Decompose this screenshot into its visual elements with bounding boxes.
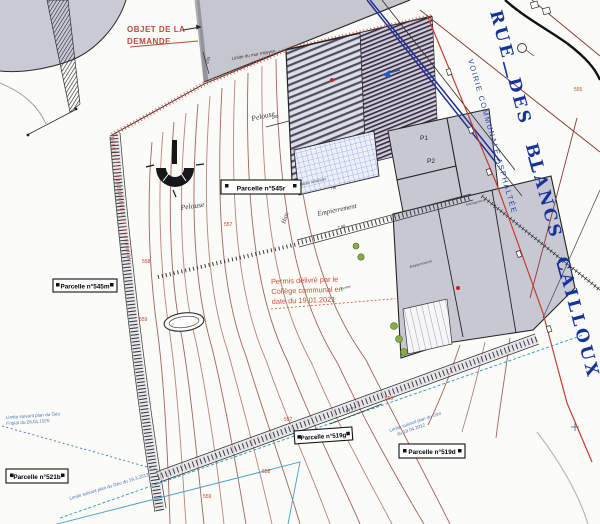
parcel-label-521b: Parcelle n°521b <box>6 469 68 483</box>
building-mark-p1: P1 <box>420 135 428 142</box>
contour-label-556: 556 <box>385 396 394 402</box>
parcel-label-519d: Parcelle n°519d <box>399 444 465 458</box>
contour-label-559a: 559 <box>139 317 148 323</box>
contour-label-558a: 558 <box>142 259 151 265</box>
parcel-545m-label: Parcelle n°545m <box>60 283 109 291</box>
contour-label-558b: 558 <box>262 469 271 475</box>
contour-label-555: 555 <box>574 87 583 93</box>
building-mark-p2: P2 <box>427 158 435 165</box>
request-object-line2: DEMANDE <box>127 37 171 46</box>
parcel-519d-label: Parcelle n°519d <box>408 448 455 456</box>
parcel-545r-label: Parcelle n°545r <box>237 185 286 193</box>
site-plan-page: RUE DES BLANCS CAILLOUX VOIRIE COMMUNALE… <box>0 0 600 524</box>
parcel-label-545m: Parcelle n°545m <box>53 279 117 292</box>
parcel-label-545r: Parcelle n°545r <box>221 180 301 194</box>
request-object-line1: OBJET DE LA <box>127 25 185 34</box>
site-plan-svg: RUE DES BLANCS CAILLOUX VOIRIE COMMUNALE… <box>0 0 600 524</box>
contour-label-559b: 559 <box>203 494 212 500</box>
terrace-ladder-strip <box>403 299 452 354</box>
red-dot-marker <box>456 286 460 290</box>
red-dot-marker <box>330 78 334 82</box>
parcel-521b-label: Parcelle n°521b <box>13 473 60 481</box>
contour-label-557a: 557 <box>224 222 233 228</box>
contour-label-557b: 557 <box>284 417 293 423</box>
